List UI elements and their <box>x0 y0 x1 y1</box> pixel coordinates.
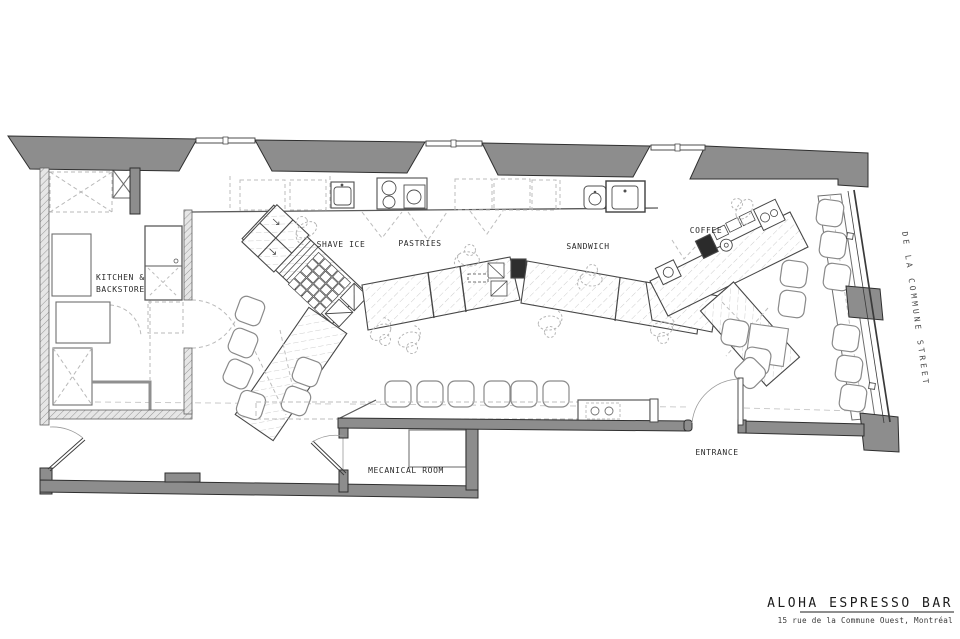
wall-stub <box>130 168 140 214</box>
entrance-label: ENTRANCE <box>695 448 738 457</box>
wall-pier <box>255 140 425 173</box>
pastries-label: PASTRIES <box>398 239 441 248</box>
floor-plan-sheet: KITCHEN & BACKSTORE <box>0 0 960 639</box>
bottom-wall <box>742 421 864 436</box>
sink <box>331 182 354 208</box>
door-jamb <box>339 470 348 492</box>
wall-pier <box>482 143 650 177</box>
kitchen-label-line1: KITCHEN & <box>96 273 145 282</box>
kitchen-right-wall <box>184 348 192 414</box>
storefront-pier <box>846 286 883 320</box>
stove <box>377 178 427 209</box>
kitchen-left-wall <box>40 168 49 425</box>
coffee-label: COFFEE <box>690 226 723 235</box>
sink <box>606 181 645 212</box>
shave-ice-label: SHAVE ICE <box>317 240 366 249</box>
paper-background <box>0 0 960 639</box>
kitchen-label-line2: BACKSTORE <box>96 285 145 294</box>
mechanical-room: MECANICAL ROOM <box>343 425 474 491</box>
door-jamb <box>339 428 348 438</box>
project-title: ALOHA ESPRESSO BAR <box>767 596 953 611</box>
fridge <box>145 226 182 300</box>
project-address: 15 rue de la Commune Ouest, Montréal <box>778 616 953 625</box>
corner-pier <box>860 413 899 452</box>
sandwich-label: SANDWICH <box>566 242 609 251</box>
mechanical-room-label: MECANICAL ROOM <box>368 466 444 475</box>
mech-room-wall <box>466 427 478 490</box>
kitchen-bottom-wall <box>49 410 192 419</box>
coffee-urn <box>584 186 606 209</box>
floor-plan-drawing: KITCHEN & BACKSTORE <box>0 0 960 639</box>
pos-register <box>511 259 526 278</box>
title-block: ALOHA ESPRESSO BAR 15 rue de la Commune … <box>767 596 954 625</box>
mechanical-equipment <box>409 430 466 467</box>
wall-pier <box>8 136 197 171</box>
kitchen-right-wall <box>184 210 192 300</box>
wall-step <box>165 473 200 482</box>
wall-end-cap <box>684 420 692 431</box>
